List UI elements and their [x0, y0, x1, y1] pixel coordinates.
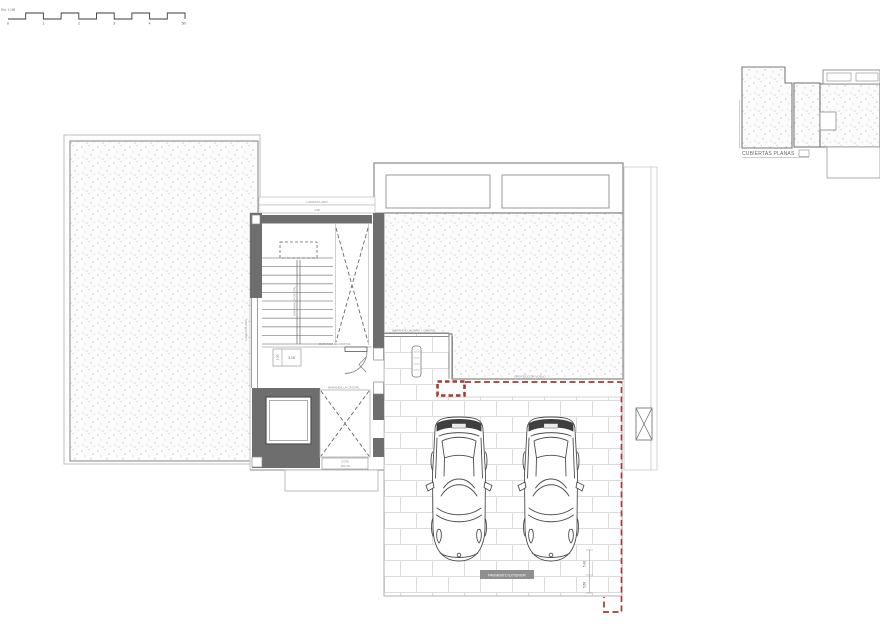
scale-tick-4: 4 [149, 22, 151, 26]
projection-label: PROYECCIÓN VUELO [514, 374, 546, 379]
stair-core: LAMAS PLANO 4.90 LAMAS PLANO BARANDILLA … [244, 197, 384, 491]
dim-568: 5.68 [583, 582, 587, 588]
louvre-label: LAMAS PLANO [306, 200, 328, 204]
left-roof-terrace [64, 135, 260, 464]
key-plan-skylight-1 [827, 73, 851, 81]
railing-label: BARANDILLA OBRA + CRISTAL [392, 329, 436, 333]
key-plan-lower-block [827, 147, 880, 178]
key-plan-notch [820, 112, 836, 130]
scale-tick-3: 3 [113, 22, 115, 26]
cota-label-1: COTA [341, 460, 349, 464]
wall-notch-1 [252, 215, 260, 224]
wall-right-upper [373, 213, 384, 348]
pavement-badge-label: PAVIMENTO EXTERIOR [488, 574, 526, 578]
key-plan-title: CUBIERTAS PLANAS [742, 151, 795, 157]
left-roof-gravel-surface [70, 141, 258, 461]
lower-extension-outline [285, 470, 378, 491]
key-plan-roof-b [794, 83, 820, 147]
louvre-dim: 4.90 [314, 208, 320, 212]
scale-bar: Esc. 1:100 0 1 2 3 4 5m [1, 8, 187, 26]
car-left [426, 417, 492, 561]
drawing-canvas: Esc. 1:100 0 1 2 3 4 5m CUBIERTAS PLANAS [0, 0, 880, 640]
skylight-1 [386, 175, 490, 208]
projection-entry-marker [438, 382, 465, 396]
scale-tick-2: 2 [78, 22, 80, 26]
wall-top [262, 215, 372, 224]
key-plan-title-box [799, 150, 809, 157]
elevator-cab-outer [266, 397, 311, 444]
scale-tick-1: 1 [42, 22, 44, 26]
key-plan-roof-a [742, 67, 792, 148]
wall-right-lower [373, 438, 384, 457]
stair-railing-label: BARANDILLA CRISTAL [293, 286, 297, 316]
void-railing-label: BARANDILLA CRISTAL [328, 386, 360, 390]
wall-notch-4 [252, 457, 262, 467]
dim-540: 5.40 [583, 561, 587, 567]
scale-tick-0: 0 [7, 22, 9, 26]
scale-text: Esc. 1:100 [1, 8, 16, 12]
key-plan: CUBIERTAS PLANAS [740, 67, 880, 178]
door-leaf [345, 347, 367, 352]
bench-element [412, 346, 421, 377]
roof-plan-drawing: Esc. 1:100 0 1 2 3 4 5m CUBIERTAS PLANAS [0, 0, 880, 640]
car-right [518, 417, 584, 561]
key-plan-skylight-2 [856, 73, 878, 81]
dim-150: 1.50 [276, 354, 280, 360]
landing-railing-label: BARANDILLA CRISTAL [319, 342, 351, 346]
cota-label-2: 150.78 [340, 464, 350, 468]
dim-310: 3.10 [288, 356, 295, 360]
wall-left-label: LAMAS PLANO [244, 319, 248, 341]
scale-bar-rule [8, 13, 185, 19]
skylight-2 [502, 175, 609, 208]
wall-left [250, 213, 262, 298]
scale-tick-5: 5m [182, 22, 187, 26]
wall-notch-3 [374, 382, 384, 394]
wall-notch-2 [374, 348, 384, 360]
wall-right-mid [373, 394, 384, 420]
